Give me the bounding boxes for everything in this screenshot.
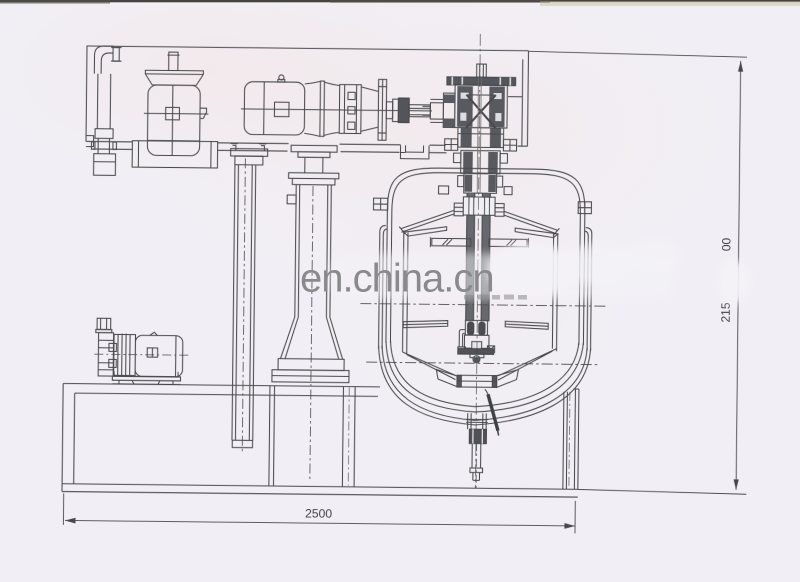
svg-text:00: 00	[719, 237, 733, 251]
svg-text:2500: 2500	[305, 506, 332, 520]
svg-text:en.china.cn: en.china.cn	[300, 257, 494, 301]
svg-text:215: 215	[719, 302, 733, 322]
